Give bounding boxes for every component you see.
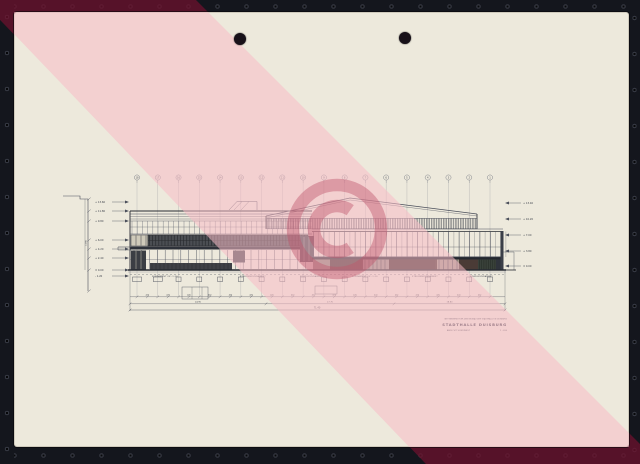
svg-text:+ 7.00: + 7.00: [523, 233, 532, 237]
svg-text:420: 420: [146, 294, 150, 296]
svg-text:± 0.00: ± 0.00: [523, 264, 532, 268]
svg-text:± 0.00: ± 0.00: [95, 268, 104, 272]
copyright-symbol: [293, 185, 381, 273]
copyright-watermark-icon: [277, 169, 397, 289]
svg-text:420: 420: [208, 294, 212, 296]
left-canopy: [118, 247, 131, 250]
svg-text:+ 3.80: + 3.80: [523, 249, 532, 253]
svg-text:420: 420: [249, 294, 253, 296]
svg-text:2: 2: [468, 177, 470, 180]
svg-text:+ 13.40: + 13.40: [523, 201, 533, 205]
film-frame-right: [629, 0, 640, 464]
scanned-drawing-photo: 18171615141312111098765432114.60+ 13.60+…: [0, 0, 640, 464]
svg-text:+ 2.40: + 2.40: [95, 256, 104, 260]
svg-text:5: 5: [406, 177, 408, 180]
svg-text:4: 4: [427, 177, 429, 180]
left-section-profile: 14.60: [63, 196, 91, 293]
svg-text:420: 420: [187, 294, 191, 296]
svg-text:3: 3: [448, 177, 450, 180]
paper-sheet: 18171615141312111098765432114.60+ 13.60+…: [14, 12, 629, 447]
punch-hole-right: [399, 32, 412, 45]
punch-hole-left: [234, 33, 247, 46]
svg-text:+ 10.20: + 10.20: [523, 217, 533, 221]
film-frame-left: [0, 0, 14, 464]
svg-text:420: 420: [229, 294, 233, 296]
svg-text:FUNDAMENT OK -1.20: FUNDAMENT OK -1.20: [152, 275, 178, 278]
left-level-marks: + 13.60+ 11.80+ 9.80+ 6.00+ 4.20+ 2.40± …: [95, 200, 129, 278]
svg-text:- 1.20: - 1.20: [95, 274, 103, 278]
svg-text:18: 18: [135, 177, 139, 180]
svg-text:1: 1: [489, 177, 491, 180]
right-level-marks: + 13.40+ 10.20+ 7.00+ 3.80± 0.00: [505, 201, 533, 268]
svg-text:+ 13.60: + 13.60: [95, 200, 105, 204]
svg-text:14.60: 14.60: [86, 239, 88, 246]
svg-text:+ 11.80: + 11.80: [95, 209, 105, 213]
svg-text:+ 4.20: + 4.20: [95, 247, 104, 251]
svg-text:420: 420: [166, 294, 170, 296]
svg-text:+ 6.00: + 6.00: [95, 238, 104, 242]
svg-text:+ 9.80: + 9.80: [95, 219, 104, 223]
svg-text:24.90: 24.90: [195, 301, 202, 303]
